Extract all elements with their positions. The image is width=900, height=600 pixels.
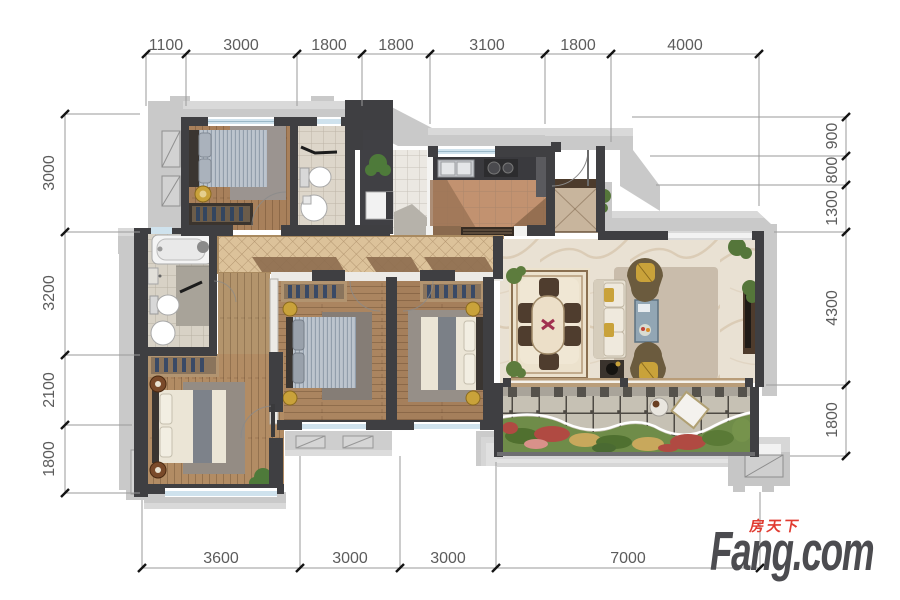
- svg-text:3000: 3000: [430, 550, 466, 567]
- svg-text:1100: 1100: [149, 37, 184, 54]
- svg-text:3600: 3600: [203, 550, 239, 567]
- svg-text:3100: 3100: [469, 37, 505, 54]
- svg-text:3000: 3000: [41, 155, 58, 191]
- svg-text:1800: 1800: [41, 441, 58, 477]
- svg-text:1800: 1800: [378, 37, 414, 54]
- svg-text:1800: 1800: [560, 37, 596, 54]
- svg-text:3000: 3000: [332, 550, 368, 567]
- svg-text:1300: 1300: [824, 190, 841, 226]
- svg-text:4300: 4300: [824, 290, 841, 326]
- svg-text:1800: 1800: [824, 402, 841, 438]
- svg-text:Fang.com: Fang.com: [710, 521, 873, 582]
- svg-text:3200: 3200: [41, 275, 58, 311]
- svg-text:4000: 4000: [667, 37, 703, 54]
- svg-text:1800: 1800: [311, 37, 347, 54]
- svg-text:2100: 2100: [41, 372, 58, 408]
- svg-text:7000: 7000: [610, 550, 646, 567]
- svg-text:3000: 3000: [223, 37, 259, 54]
- svg-text:800: 800: [824, 157, 841, 184]
- svg-text:900: 900: [824, 123, 841, 150]
